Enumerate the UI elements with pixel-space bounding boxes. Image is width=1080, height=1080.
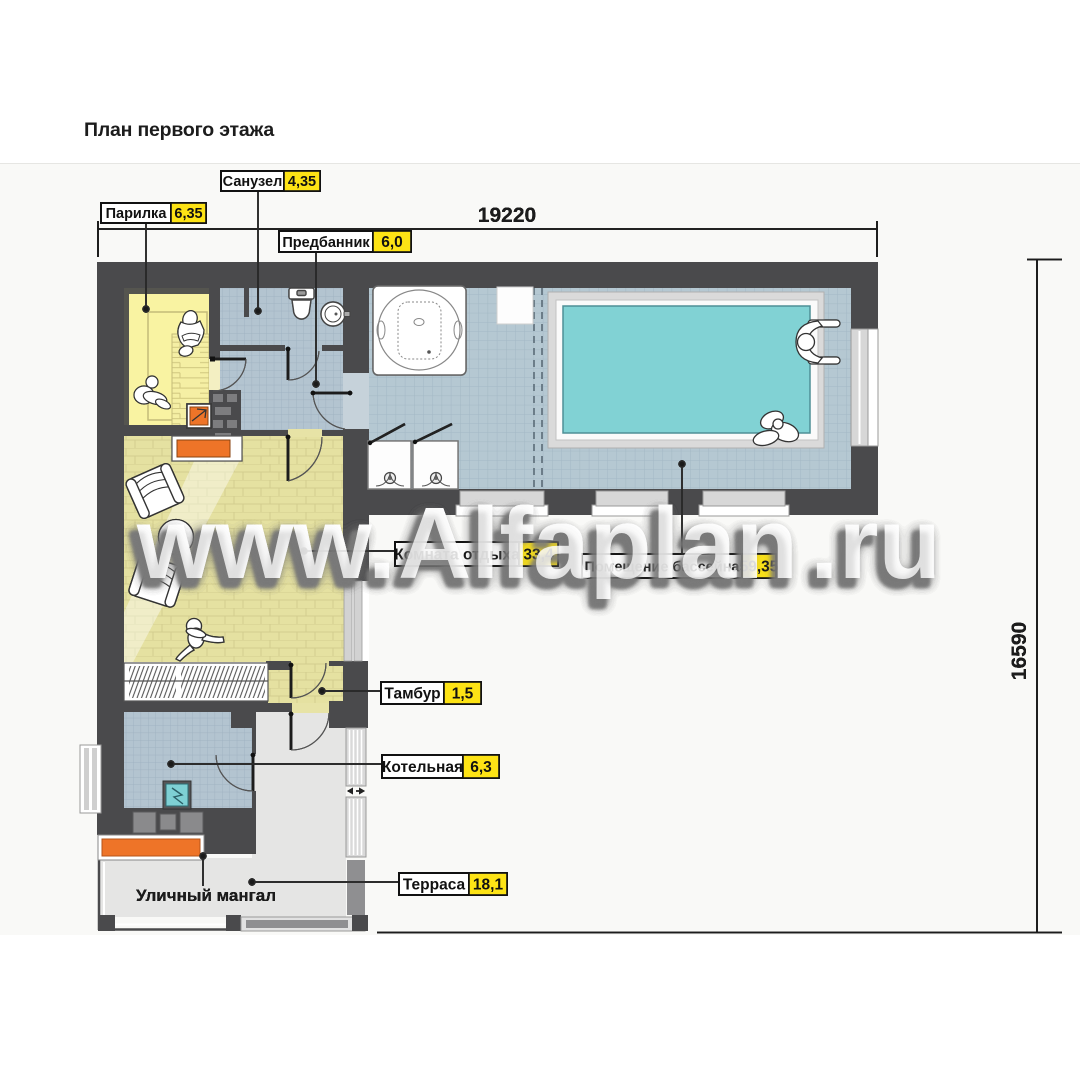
svg-text:6,3: 6,3 xyxy=(470,759,492,776)
svg-text:16590: 16590 xyxy=(1008,622,1031,680)
svg-text:Alfaplan: Alfaplan xyxy=(398,488,798,600)
svg-text:Парилка: Парилка xyxy=(106,206,168,222)
svg-text:Уличный мангал: Уличный мангал xyxy=(136,886,276,905)
svg-text:Терраса: Терраса xyxy=(403,876,466,893)
svg-text:6,0: 6,0 xyxy=(381,234,403,251)
svg-text:Тамбур: Тамбур xyxy=(384,685,440,702)
svg-text:18,1: 18,1 xyxy=(473,876,504,893)
svg-text:.ru: .ru xyxy=(810,488,941,600)
svg-text:План первого этажа: План первого этажа xyxy=(84,119,274,141)
svg-text:1,5: 1,5 xyxy=(452,685,474,702)
svg-text:19220: 19220 xyxy=(478,204,536,227)
svg-text:6,35: 6,35 xyxy=(174,206,202,222)
svg-text:www.: www. xyxy=(136,488,396,600)
svg-text:Котельная: Котельная xyxy=(382,759,463,776)
svg-text:Предбанник: Предбанник xyxy=(282,235,370,251)
svg-text:4,35: 4,35 xyxy=(288,174,316,190)
svg-text:Санузел: Санузел xyxy=(223,174,283,190)
